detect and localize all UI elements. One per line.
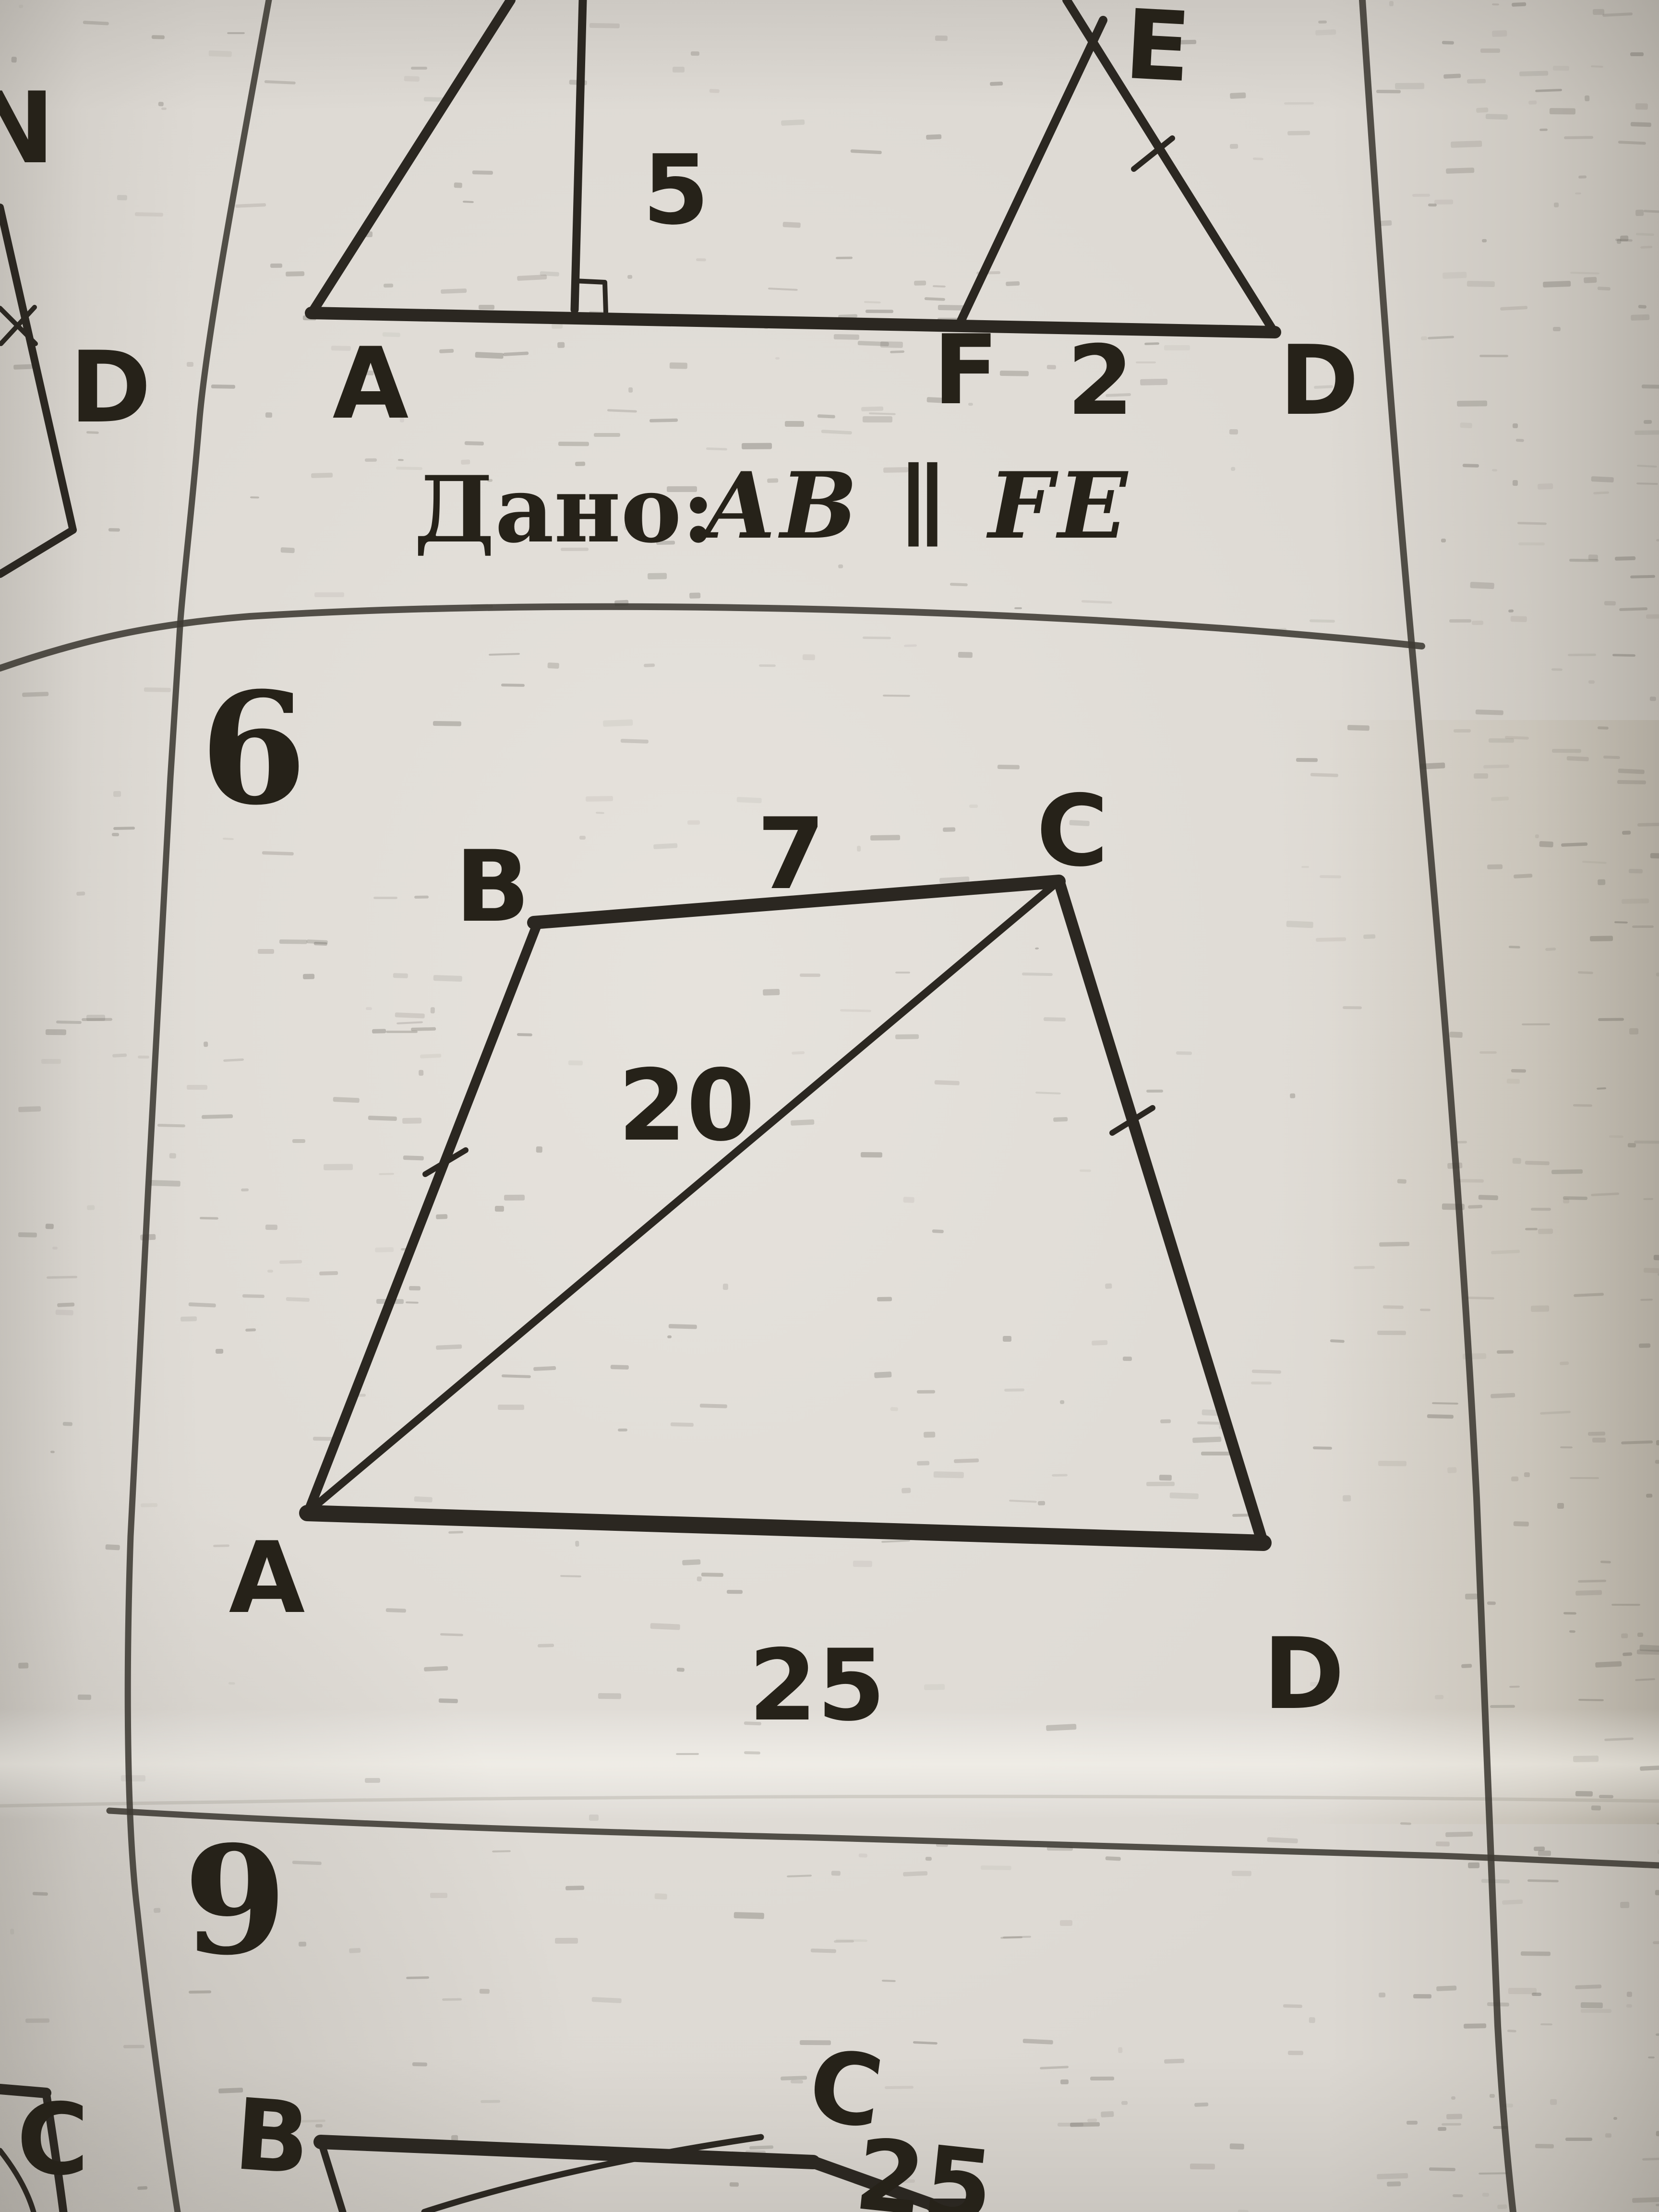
speckle: [1004, 1388, 1024, 1392]
speckle: [46, 1224, 54, 1229]
fig6-vertex-d-label: D: [1263, 1617, 1345, 1731]
speckle: [800, 974, 820, 977]
speckle: [18, 1106, 41, 1112]
speckle: [1528, 100, 1537, 105]
speckle: [1563, 1199, 1569, 1203]
speckle: [763, 989, 780, 996]
speckle: [1482, 239, 1487, 242]
speckle: [1631, 314, 1649, 321]
speckle: [1634, 1141, 1659, 1144]
speckle: [436, 1214, 447, 1219]
speckle: [853, 1561, 872, 1567]
speckle: [1646, 1494, 1652, 1498]
speckle: [50, 1451, 55, 1453]
speckle: [603, 720, 633, 727]
speckle: [934, 1471, 964, 1478]
speckle: [890, 1407, 898, 1411]
speckle: [1090, 2077, 1114, 2080]
speckle: [454, 182, 462, 188]
speckle: [1310, 619, 1335, 623]
speckle: [1532, 1993, 1541, 1996]
speckle: [1140, 379, 1167, 385]
speckle: [1449, 619, 1471, 623]
speckle: [1570, 1477, 1599, 1479]
speckle: [216, 1349, 223, 1354]
speckle: [1164, 345, 1190, 350]
speckle: [667, 1335, 672, 1338]
speckle: [1637, 1633, 1643, 1637]
speckle: [618, 1429, 627, 1431]
speckle: [1509, 946, 1520, 949]
speckle: [1436, 1985, 1456, 1991]
speckle: [1578, 1699, 1604, 1701]
speckle: [885, 2086, 914, 2089]
speckle: [25, 2019, 49, 2023]
speckle: [349, 1948, 361, 1953]
speckle: [1511, 1069, 1526, 1073]
speckle: [1653, 1941, 1659, 1944]
speckle: [465, 441, 484, 445]
speckle: [958, 652, 973, 658]
speckle: [1397, 1179, 1407, 1184]
speckle: [386, 1031, 418, 1033]
speckle: [1629, 1028, 1638, 1034]
speckle: [1518, 542, 1545, 545]
speckle: [1316, 937, 1346, 942]
speckle: [734, 1912, 764, 1919]
speckle: [926, 134, 941, 140]
speckle: [1468, 1863, 1479, 1868]
speckle: [1588, 1431, 1605, 1436]
speckle: [1160, 1419, 1171, 1423]
speckle: [1320, 875, 1341, 878]
speckle: [414, 1496, 433, 1503]
speckle: [669, 1324, 697, 1329]
speckle: [1622, 830, 1631, 835]
speckle: [1598, 879, 1605, 885]
speckle: [433, 721, 461, 726]
speckle: [863, 416, 892, 422]
speckle: [1412, 194, 1430, 197]
speckle: [1591, 476, 1613, 482]
speckle: [1315, 29, 1336, 36]
speckle: [917, 1390, 935, 1394]
speckle: [1080, 1169, 1091, 1172]
speckle: [1564, 136, 1593, 139]
speckle: [1629, 869, 1643, 874]
speckle: [1646, 614, 1659, 619]
speckle: [1620, 1902, 1629, 1908]
speckle: [1519, 71, 1548, 76]
speckle: [1535, 2144, 1554, 2149]
speckle: [1476, 108, 1488, 113]
left-cell9-vertex-c-label: C: [17, 2083, 89, 2197]
speckle: [1201, 1452, 1230, 1455]
speckle: [501, 684, 525, 687]
speckle: [431, 1007, 435, 1013]
speckle: [1461, 1664, 1472, 1668]
page-canvas: N D A 5 E F 2 D Дано: AB ∥ FE 6 B 7 C 20…: [0, 0, 1659, 2212]
speckle: [314, 592, 344, 597]
speckle: [1539, 129, 1548, 131]
speckle: [1474, 773, 1488, 779]
speckle: [403, 1155, 424, 1160]
speckle: [1557, 1503, 1564, 1509]
fig6-side-bc-value: 7: [757, 797, 826, 912]
speckle: [1648, 2056, 1655, 2058]
speckle: [1413, 1994, 1431, 1998]
speckle: [161, 108, 167, 110]
speckle: [1170, 1492, 1199, 1499]
speckle: [538, 1644, 554, 1647]
speckle: [1420, 1309, 1431, 1311]
speckle: [1434, 200, 1453, 204]
speckle: [1467, 281, 1495, 287]
speckle: [1590, 936, 1613, 941]
speckle: [1118, 2047, 1122, 2053]
speckle: [568, 1060, 583, 1066]
speckle: [1628, 1143, 1636, 1148]
speckle: [914, 280, 926, 286]
speckle: [1617, 780, 1646, 784]
speckle: [152, 35, 165, 39]
speckle: [1230, 144, 1238, 149]
speckle: [649, 419, 678, 422]
speckle: [1588, 680, 1595, 684]
speckle: [1022, 973, 1053, 976]
speckle: [598, 1693, 621, 1699]
speckle: [557, 342, 565, 348]
speckle: [1605, 2133, 1611, 2138]
speckle: [1445, 1832, 1473, 1837]
fig5-vertex-a-label: A: [333, 327, 409, 441]
speckle: [1569, 1630, 1575, 1633]
speckle: [1460, 422, 1472, 428]
speckle: [1380, 220, 1392, 226]
speckle: [1427, 1414, 1454, 1419]
speckle: [1490, 2094, 1495, 2098]
speckle: [1454, 729, 1471, 733]
speckle: [504, 1195, 525, 1201]
speckle: [402, 1118, 421, 1124]
speckle: [1253, 157, 1263, 160]
speckle: [213, 1544, 229, 1547]
speckle: [250, 496, 259, 498]
speckle: [759, 664, 776, 667]
speckle: [1507, 2030, 1516, 2032]
speckle: [1290, 1094, 1295, 1098]
speckle: [1379, 1242, 1409, 1247]
speckle: [1550, 108, 1575, 115]
speckle: [1379, 1993, 1385, 1997]
speckle: [1230, 2143, 1244, 2150]
speckle: [1552, 749, 1581, 753]
speckle: [1543, 281, 1571, 288]
speckle: [611, 1365, 629, 1370]
speckle: [144, 687, 171, 692]
speckle: [1231, 467, 1235, 471]
speckle: [1585, 96, 1589, 101]
speckle: [1438, 2127, 1446, 2131]
speckle: [1538, 1851, 1551, 1856]
speckle: [863, 637, 891, 639]
speckle: [1479, 1195, 1498, 1200]
speckle: [279, 1260, 302, 1264]
speckle: [627, 275, 632, 279]
speckle: [904, 644, 917, 647]
speckle: [1146, 1482, 1175, 1486]
speckle: [411, 67, 427, 70]
speckle: [1513, 423, 1518, 428]
speckle: [433, 975, 462, 982]
speckle: [723, 1284, 728, 1290]
fig6-vertex-a-label: A: [229, 1521, 305, 1635]
speckle: [386, 1608, 406, 1613]
speckle: [1593, 9, 1604, 15]
speckle: [1635, 210, 1644, 216]
speckle: [917, 1461, 929, 1466]
speckle: [1449, 1032, 1462, 1038]
speckle: [1635, 430, 1659, 435]
speckle: [1635, 103, 1648, 110]
speckle: [1630, 52, 1644, 56]
speckle: [187, 362, 193, 367]
speckle: [811, 1948, 836, 1953]
speckle: [150, 1180, 180, 1187]
speckle: [1599, 1795, 1613, 1798]
speckle: [303, 974, 314, 979]
speckle: [479, 305, 494, 310]
speckle: [1613, 2117, 1617, 2120]
speckle: [412, 2062, 427, 2067]
speckle: [1643, 1198, 1653, 1200]
speckle: [1507, 1079, 1520, 1084]
speckle: [1497, 2204, 1507, 2209]
speckle: [1525, 1161, 1550, 1166]
speckle: [1283, 2004, 1302, 2008]
speckle: [1569, 559, 1599, 562]
speckle: [1343, 1006, 1362, 1009]
speckle: [1514, 1521, 1529, 1527]
speckle: [365, 1778, 380, 1783]
speckle: [1251, 1382, 1272, 1384]
speckle: [1632, 926, 1654, 928]
speckle: [11, 57, 17, 62]
speckle: [365, 458, 377, 462]
speckle: [56, 1021, 82, 1024]
workbook-page-photo: N D A 5 E F 2 D Дано: AB ∥ FE 6 B 7 C 20…: [0, 0, 1659, 2212]
speckle: [579, 836, 586, 840]
speckle: [1014, 607, 1022, 609]
speckle: [87, 1205, 95, 1210]
speckle: [932, 1229, 944, 1233]
speckle: [1343, 1495, 1351, 1502]
speckle: [924, 1684, 945, 1690]
speckle: [1087, 2118, 1097, 2122]
speckle: [241, 1189, 249, 1191]
speckle: [648, 573, 667, 579]
speckle: [1521, 1951, 1551, 1956]
speckle: [1626, 2004, 1632, 2008]
speckle: [117, 195, 127, 200]
speckle: [709, 89, 720, 93]
speckle: [838, 565, 843, 568]
speckle: [204, 1042, 208, 1047]
speckle: [138, 1056, 149, 1058]
speckle: [895, 1034, 919, 1039]
speckle: [46, 1029, 66, 1035]
speckle: [1003, 1336, 1011, 1342]
speckle: [108, 528, 120, 532]
speckle: [589, 1815, 599, 1821]
speckle: [1591, 1805, 1601, 1811]
speckle: [565, 1886, 584, 1890]
speckle: [895, 972, 910, 974]
speckle: [1286, 921, 1313, 928]
speckle: [406, 1301, 419, 1304]
speckle: [1136, 361, 1156, 363]
speckle: [472, 170, 493, 175]
given-formula-text: AB ∥ FE: [697, 452, 1132, 559]
speckle: [990, 82, 1003, 86]
speckle: [430, 1893, 447, 1898]
speckle: [1524, 1472, 1530, 1477]
speckle: [1598, 287, 1611, 290]
speckle: [112, 833, 119, 836]
speckle: [10, 1929, 14, 1935]
speckle: [1531, 1208, 1551, 1211]
speckle: [1522, 1023, 1550, 1025]
fig9-vertex-b-label: B: [231, 2078, 313, 2197]
speckle: [270, 264, 282, 268]
speckle: [1604, 601, 1616, 605]
speckle: [1047, 365, 1056, 370]
speckle: [1441, 539, 1446, 542]
speckle: [689, 592, 700, 599]
speckle: [1464, 2023, 1486, 2029]
problem6-number: 6: [200, 659, 307, 839]
speckle: [877, 1297, 892, 1301]
speckle: [18, 1662, 28, 1669]
speckle: [1006, 281, 1020, 286]
speckle: [1453, 2194, 1463, 2197]
speckle: [547, 662, 559, 669]
speckle: [1644, 420, 1652, 424]
speckle: [1611, 1604, 1640, 1606]
speckle: [1442, 41, 1454, 45]
problem9-number: 9: [183, 1814, 287, 1988]
speckle: [924, 1431, 935, 1438]
speckle: [1560, 1361, 1569, 1365]
speckle: [1164, 2059, 1184, 2064]
speckle: [1447, 1467, 1457, 1473]
speckle: [492, 1850, 511, 1852]
speckle: [1656, 1440, 1659, 1445]
speckle: [1538, 1228, 1553, 1234]
speckle: [555, 1938, 578, 1944]
speckle: [366, 1007, 372, 1010]
speckle: [677, 1668, 685, 1672]
speckle: [744, 1751, 760, 1755]
speckle: [700, 1404, 727, 1408]
speckle: [1377, 2173, 1408, 2179]
speckle: [696, 258, 706, 261]
fig6-diagonal-ac-value: 20: [618, 1049, 755, 1163]
speckle: [1553, 66, 1569, 71]
speckle: [315, 2124, 323, 2128]
speckle: [82, 1018, 112, 1021]
speckle: [596, 812, 604, 814]
fig5-height-value: 5: [642, 134, 709, 246]
speckle: [372, 1029, 386, 1034]
speckle: [1600, 1561, 1611, 1563]
speckle: [1296, 758, 1318, 762]
speckle: [1581, 2009, 1611, 2013]
speckle: [1105, 1283, 1112, 1289]
speckle: [1486, 114, 1508, 120]
speckle: [866, 310, 893, 313]
speckle: [1146, 1090, 1163, 1093]
speckle: [105, 1544, 120, 1551]
speckle: [1534, 1847, 1545, 1851]
speckle: [1378, 1461, 1407, 1466]
speckle: [654, 1893, 667, 1899]
speckle: [1287, 131, 1310, 135]
speckle: [1656, 2131, 1659, 2136]
speckle: [209, 50, 232, 57]
speckle: [135, 212, 163, 216]
speckle: [1446, 168, 1474, 174]
speckle: [279, 939, 307, 944]
speckle: [1575, 1791, 1593, 1797]
speckle: [311, 473, 333, 478]
speckle: [404, 76, 420, 82]
speckle: [1060, 2080, 1069, 2084]
speckle: [1575, 192, 1581, 194]
speckle: [113, 827, 135, 830]
speckle: [1581, 2002, 1603, 2008]
speckle: [1525, 1228, 1538, 1230]
speckle: [242, 1294, 264, 1298]
speckle: [1446, 2114, 1462, 2119]
speckle: [1512, 2, 1526, 7]
speckle: [594, 433, 620, 437]
speckle: [782, 222, 800, 228]
speckle: [1492, 469, 1497, 471]
speckle: [292, 1139, 305, 1143]
speckle: [687, 820, 700, 825]
speckle: [644, 663, 655, 667]
left-cell-vertex-d-label: D: [70, 331, 151, 445]
speckle: [78, 1695, 91, 1700]
speckle: [1621, 1634, 1628, 1638]
speckle: [1545, 948, 1556, 951]
speckle: [1468, 1205, 1482, 1209]
speckle: [1639, 1645, 1659, 1652]
speckle: [831, 1871, 841, 1876]
speckle: [938, 305, 964, 311]
speckle: [1395, 83, 1424, 89]
speckle: [1389, 1, 1394, 6]
speckle: [265, 412, 272, 418]
speckle: [1540, 2023, 1552, 2025]
speckle: [1060, 1400, 1064, 1404]
speckle: [969, 805, 978, 808]
fig5-vertex-d-label: D: [1279, 325, 1359, 437]
speckle: [673, 67, 685, 72]
speckle: [589, 23, 620, 28]
speckle: [1551, 668, 1563, 671]
